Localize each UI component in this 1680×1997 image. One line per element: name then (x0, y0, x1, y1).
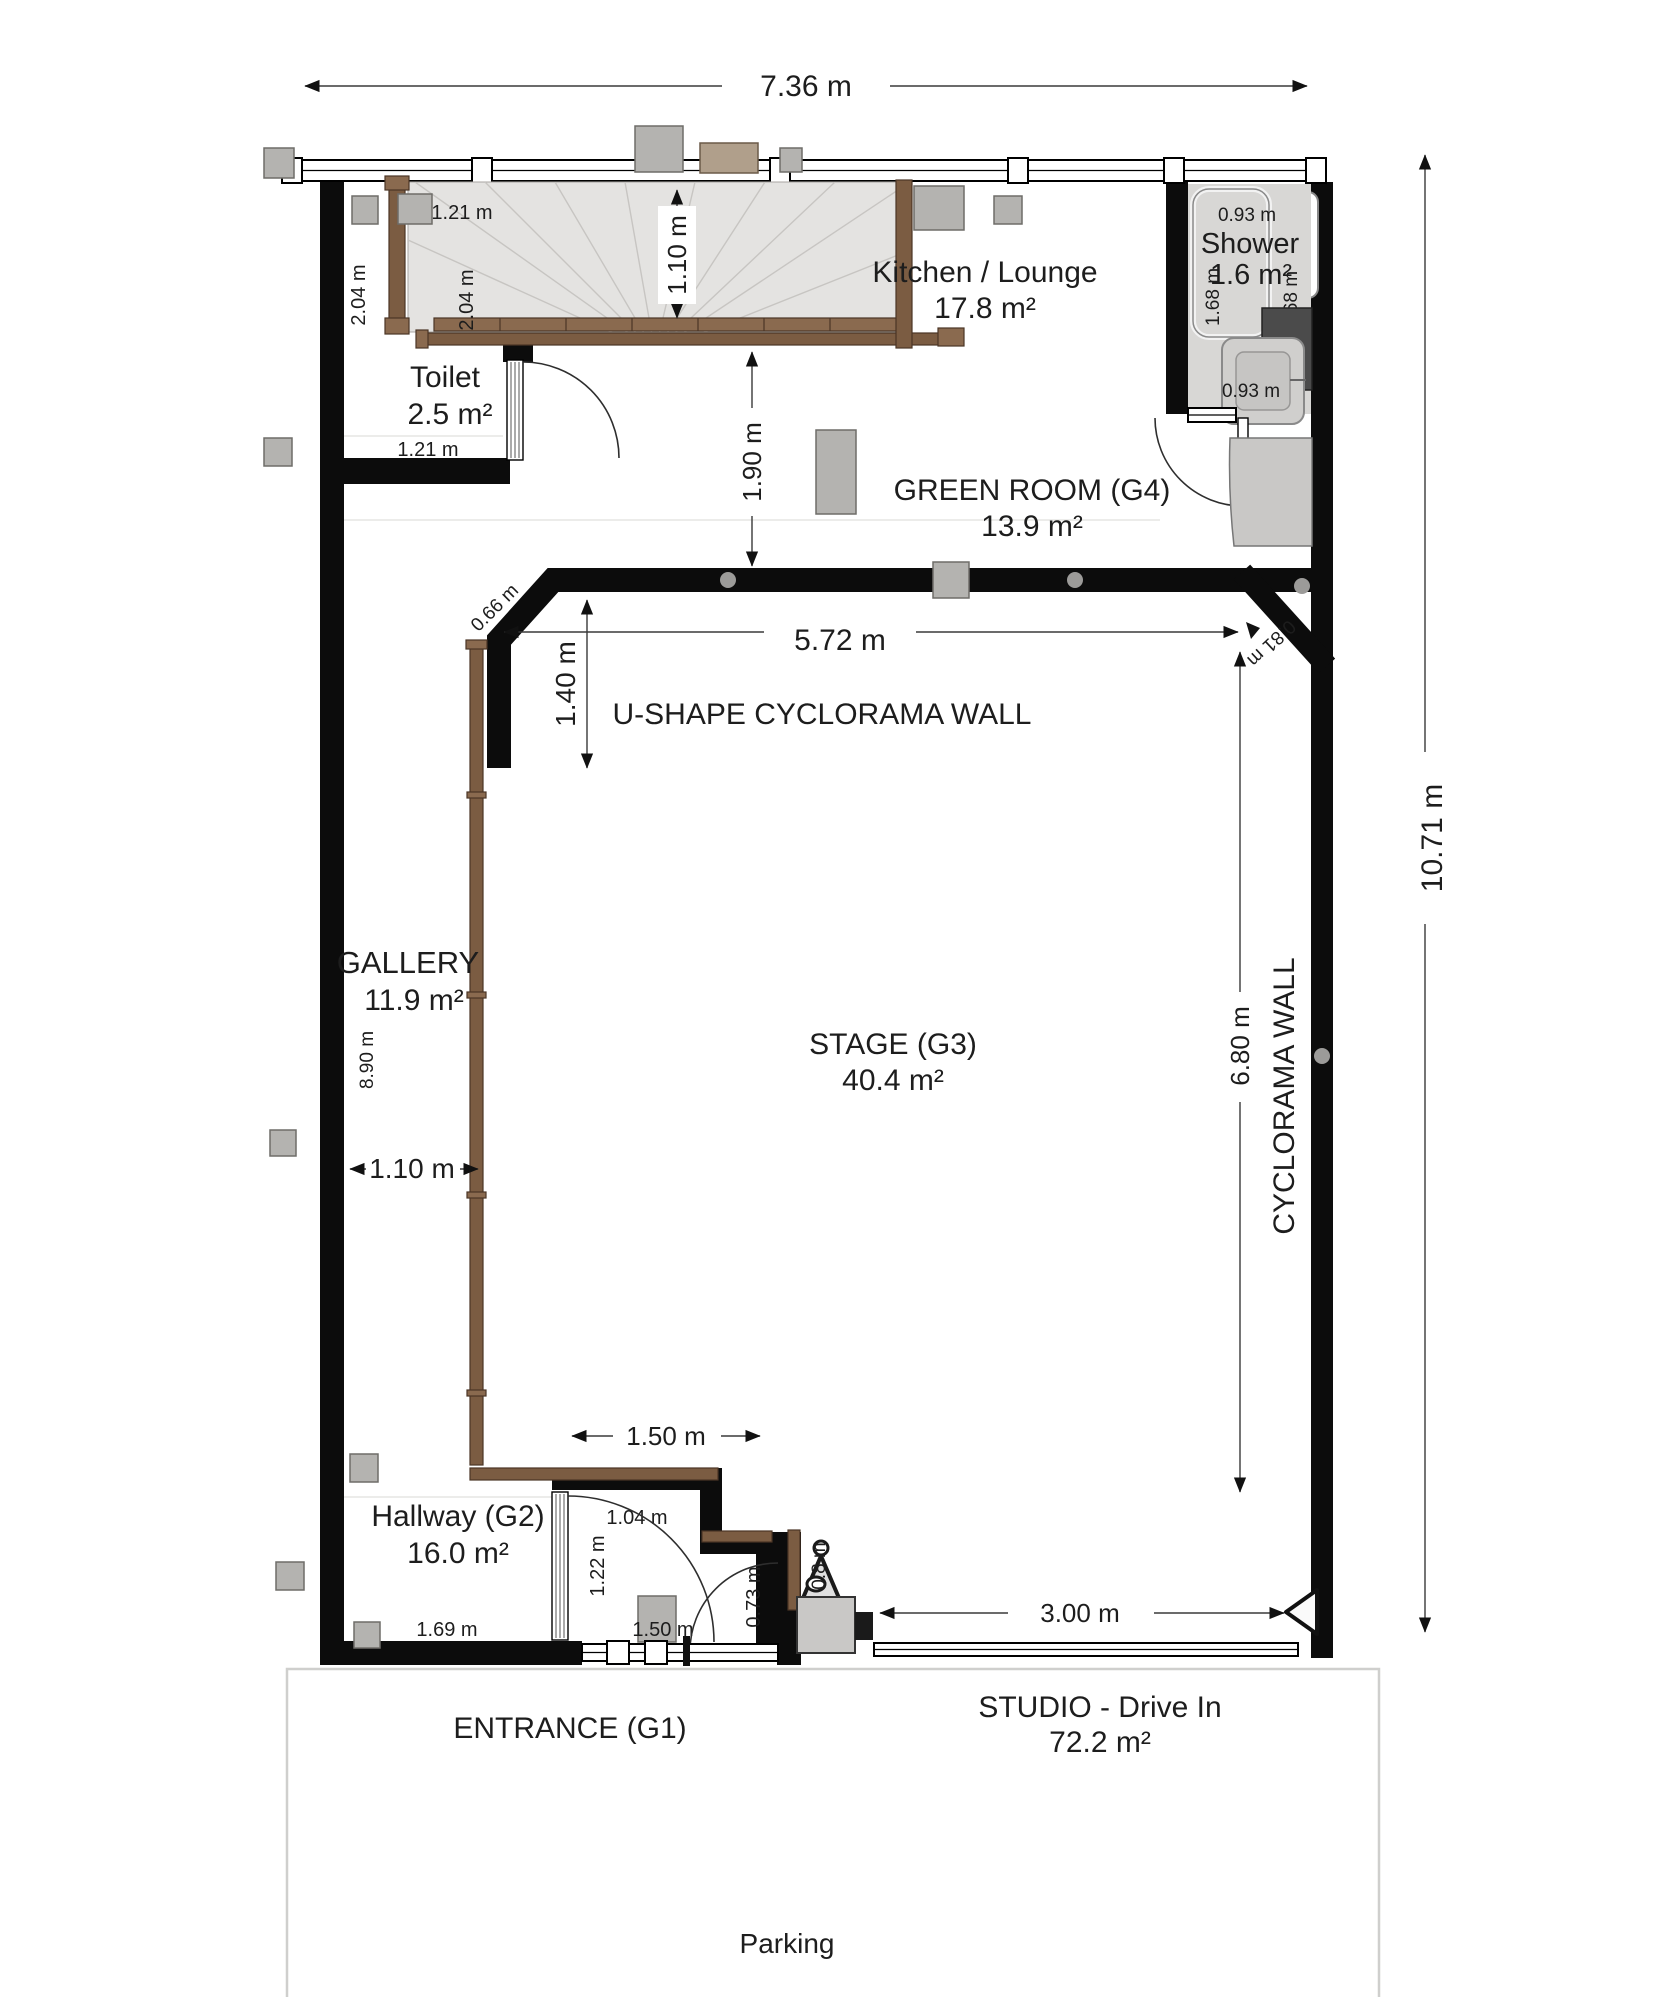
railing-joint (467, 792, 486, 798)
room-label-hallway: Hallway (G2) (371, 1500, 544, 1533)
hallway: Hallway (G2) 16.0 m² 1.50 m 1.04 m 1.22 … (350, 1420, 800, 1651)
switch-box (780, 148, 802, 172)
dim-shower-depth-left: 1.68 m (1203, 268, 1224, 326)
wall-cyclorama-u (499, 580, 1333, 768)
room-label-gallery: GALLERY (337, 945, 479, 980)
dim-toilet-width-bottom: 1.21 m (397, 439, 458, 461)
wall-right (1311, 182, 1333, 1658)
room-label-shower: Shower (1201, 228, 1300, 260)
stair-stringer-cap (385, 318, 409, 334)
cabinet (1230, 438, 1313, 546)
dim-gallery-width: 1.10 m (369, 1153, 455, 1184)
dim-shower-width-bottom: 0.93 m (1222, 381, 1280, 402)
dim-drive-in-opening: 3.00 m (1040, 1598, 1120, 1628)
equipment-box (797, 1597, 855, 1653)
fixture-box (276, 1562, 304, 1590)
door-stop-icon (1286, 1590, 1317, 1634)
dim-stage-depth: 6.80 m (1225, 1006, 1255, 1086)
dim-building-height: 10.71 m (1416, 784, 1449, 892)
gallery-railing-cap (466, 640, 487, 649)
dim-cyc-width: 5.72 m (794, 624, 886, 657)
railing-joint (467, 1192, 486, 1198)
wall-light (1294, 578, 1310, 594)
room-label-studio: STUDIO - Drive In (978, 1691, 1221, 1724)
dim-hallway-niche-width: 1.04 m (606, 1507, 667, 1529)
dim-shower-width-top: 0.93 m (1218, 205, 1276, 226)
stage: STAGE (G3) 40.4 m² 6.80 m CYCLORAMA WALL (809, 652, 1330, 1492)
dim-cyc-corner-right: 0.81 m (1243, 615, 1300, 670)
dim-hallway-opening: 1.50 m (626, 1421, 706, 1451)
dim-toilet-width-top: 1.21 m (431, 202, 492, 224)
window-mullion (1164, 158, 1184, 183)
room-area-studio: 72.2 m² (1049, 1726, 1151, 1759)
window-mullion (1008, 158, 1028, 183)
dim-hallway-niche-depth: 1.22 m (587, 1535, 609, 1596)
kitchen-counter (914, 186, 964, 230)
dim-equipment: 0.8 m (809, 1542, 830, 1590)
equipment-connector (855, 1612, 873, 1640)
dim-green-room-depth: 1.90 m (737, 422, 767, 502)
window-mullion (1306, 158, 1326, 183)
wall-light (1314, 1048, 1330, 1064)
wall-light (1067, 572, 1083, 588)
fixture-box (352, 196, 378, 224)
dim-toilet-wall-left: 2.04 m (348, 264, 370, 325)
room-label-stage: STAGE (G3) (809, 1028, 977, 1061)
wall-light (720, 572, 736, 588)
gallery: GALLERY 11.9 m² 8.90 m 1.10 m (337, 640, 487, 1465)
toilet-door-swing (523, 362, 619, 458)
dim-stair-landing: 1.10 m (662, 215, 692, 295)
wall-kitchen-shower-divider (1166, 182, 1188, 414)
dim-entrance-side-depth: 0.73 m (743, 1566, 765, 1627)
dim-arrowhead (1246, 622, 1260, 639)
room-label-kitchen: Kitchen / Lounge (872, 256, 1097, 289)
dim-toilet-wall-right: 2.04 m (456, 269, 478, 330)
window-mullion (607, 1641, 629, 1664)
room-area-stage: 40.4 m² (842, 1064, 944, 1097)
railing-joint (467, 1390, 486, 1396)
fixture-box (264, 438, 292, 466)
dim-building-width: 7.36 m (760, 70, 852, 103)
wall-box (933, 562, 969, 598)
vent-unit (700, 143, 758, 173)
stair-handrail-cap (938, 328, 964, 346)
hallway-railing (470, 1468, 718, 1480)
room-label-toilet: Toilet (410, 361, 481, 394)
fixture-box (270, 1130, 296, 1156)
door-divider (683, 1636, 690, 1666)
green-room: GREEN ROOM (G4) 13.9 m² 1.90 m (733, 352, 1170, 566)
room-label-entrance: ENTRANCE (G1) (453, 1712, 686, 1745)
railing-joint (467, 992, 486, 998)
fixture-box (354, 1622, 380, 1648)
room-area-kitchen: 17.8 m² (934, 292, 1036, 325)
gallery-railing (470, 645, 483, 1465)
room-area-hallway: 16.0 m² (407, 1537, 509, 1570)
dim-hallway-door-width: 1.69 m (416, 1619, 477, 1641)
label-u-shape-cyclorama: U-SHAPE CYCLORAMA WALL (613, 698, 1032, 731)
fixture-box (398, 194, 432, 224)
hallway-railing (702, 1531, 772, 1542)
room-area-toilet: 2.5 m² (407, 398, 492, 431)
cyclorama: 5.72 m U-SHAPE CYCLORAMA WALL 1.40 m 0.6… (467, 562, 1310, 768)
vent-unit (635, 126, 683, 172)
exterior-fixtures (264, 148, 304, 1590)
bench (816, 430, 856, 514)
stair-stringer-cap (385, 176, 409, 190)
fixture-box (350, 1454, 378, 1482)
room-label-green-room: GREEN ROOM (G4) (894, 474, 1171, 507)
stair-handrail (420, 333, 944, 345)
room-area-green-room: 13.9 m² (981, 510, 1083, 543)
wall-left (320, 182, 344, 1663)
fixture-box (264, 148, 294, 178)
stair-handrail-cap (416, 330, 428, 348)
floor-plan-canvas: Parking (0, 0, 1680, 1997)
window-mullion (472, 158, 492, 183)
label-cyclorama-wall: CYCLORAMA WALL (1268, 957, 1301, 1234)
floor-plan-page: Parking (0, 0, 1680, 1997)
window-band-top (282, 158, 1326, 183)
dim-gallery-length: 8.90 m (357, 1031, 378, 1089)
dim-cyc-offset: 1.40 m (550, 641, 581, 727)
window-mullion (645, 1641, 667, 1664)
stair-bottom-edge (434, 318, 898, 331)
wall-toilet-south (320, 458, 510, 484)
parking-label: Parking (740, 1928, 835, 1959)
room-area-gallery: 11.9 m² (364, 984, 463, 1017)
kitchen-box (994, 196, 1022, 224)
